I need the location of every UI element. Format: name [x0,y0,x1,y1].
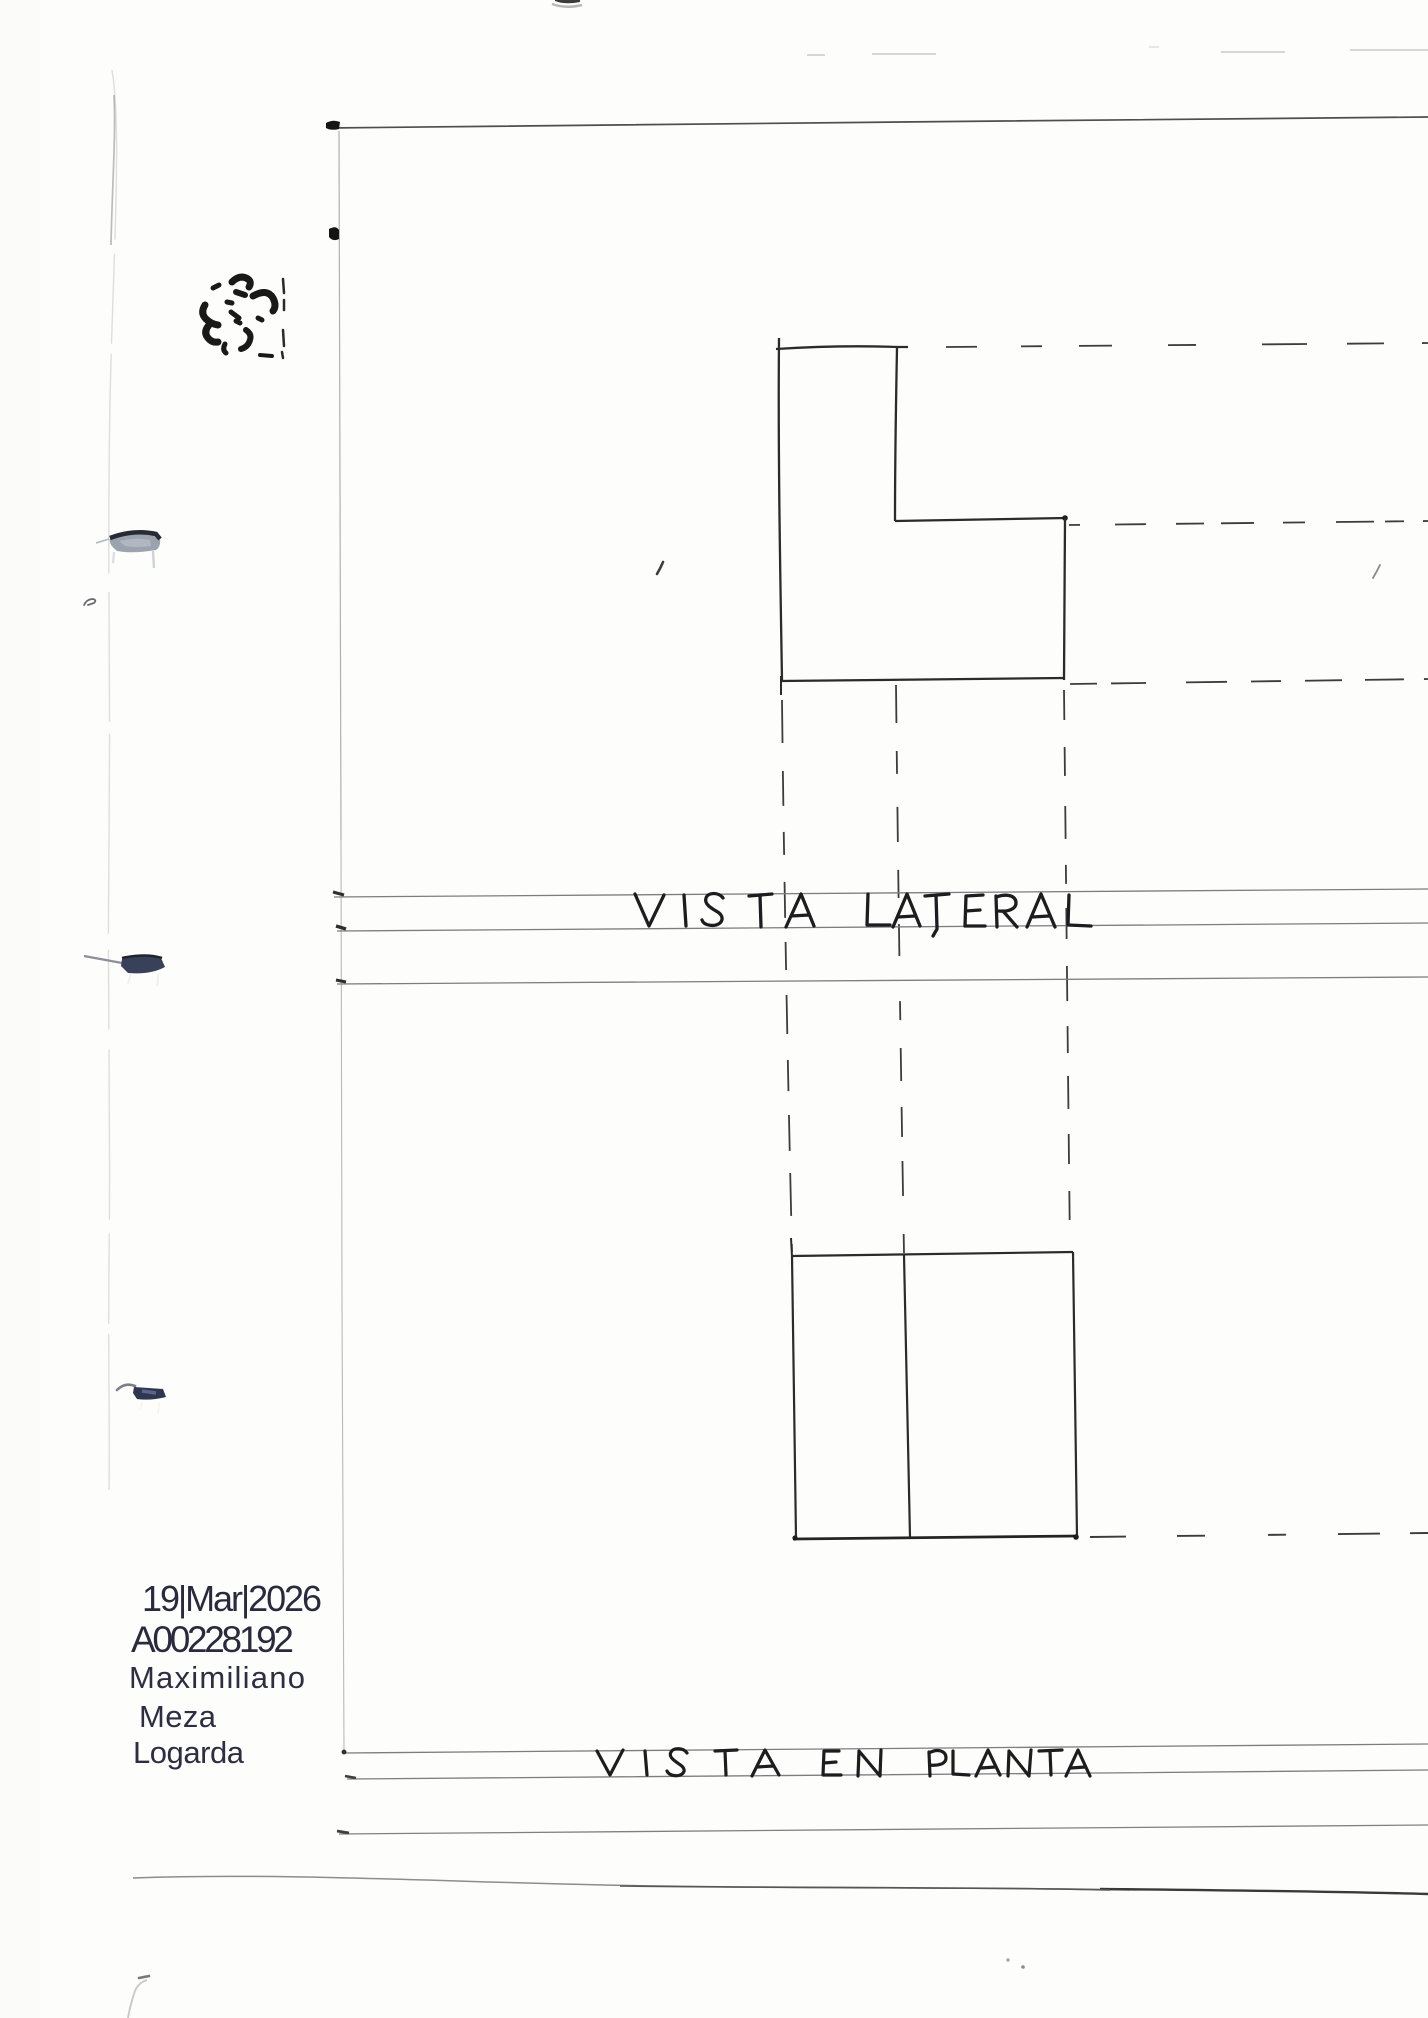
svg-text:Logarda: Logarda [133,1735,245,1770]
svg-text:Maximiliano: Maximiliano [129,1660,305,1695]
svg-text:A00228192: A00228192 [131,1619,294,1660]
svg-text:Meza: Meza [139,1699,217,1734]
svg-text:19|Mar|2026: 19|Mar|2026 [142,1578,322,1619]
